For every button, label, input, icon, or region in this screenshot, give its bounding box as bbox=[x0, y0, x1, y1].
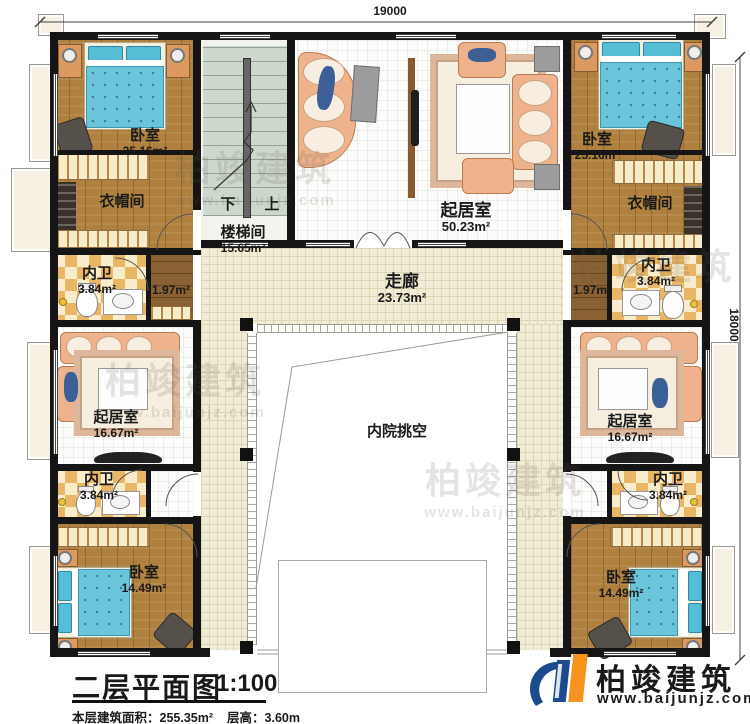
bay-window bbox=[29, 64, 52, 162]
room-name: 卧室 bbox=[123, 128, 168, 145]
room-name: 起居室 bbox=[441, 201, 492, 220]
room-name: 起居室 bbox=[93, 410, 138, 427]
stair-up-label: 上 bbox=[264, 193, 279, 214]
pillow bbox=[58, 603, 72, 633]
hallway-right-strip bbox=[517, 324, 563, 650]
room-label-bedroom-tr: 卧室 25.16m² bbox=[575, 132, 620, 162]
window bbox=[220, 34, 270, 39]
toilet bbox=[662, 291, 684, 319]
room-name: 内卫 bbox=[649, 472, 687, 489]
wall bbox=[287, 32, 295, 248]
logo-url: www.baijunjz.com bbox=[597, 690, 750, 707]
room-label-courtyard: 内院挑空 bbox=[367, 424, 427, 441]
double-door-opening bbox=[354, 240, 412, 248]
room-name: 起居室 bbox=[607, 414, 652, 431]
wall bbox=[50, 517, 193, 524]
wall bbox=[563, 320, 710, 327]
window bbox=[396, 34, 456, 39]
wall bbox=[571, 517, 710, 524]
lamp bbox=[62, 48, 77, 63]
column bbox=[507, 318, 520, 331]
room-label-living-right: 起居室 16.67m² bbox=[607, 414, 652, 444]
courtyard-rail-top bbox=[257, 324, 507, 333]
room-area: 16.67m² bbox=[93, 427, 138, 440]
room-name: 内卫 bbox=[637, 258, 675, 275]
person bbox=[468, 48, 496, 62]
floor-lamp bbox=[58, 498, 66, 506]
window bbox=[705, 556, 710, 626]
threshold bbox=[150, 306, 191, 320]
vestibule-bottom-left bbox=[148, 471, 193, 517]
sofa-cushion bbox=[518, 110, 552, 136]
sofa-cushion bbox=[303, 126, 345, 154]
window bbox=[78, 651, 150, 656]
pillow bbox=[602, 42, 640, 57]
room-area: 50.23m² bbox=[441, 220, 492, 235]
window bbox=[602, 34, 676, 39]
bay-window bbox=[11, 168, 53, 252]
room-label-bath-tl: 内卫 3.84m² bbox=[78, 266, 116, 296]
room-area: 25.16m² bbox=[575, 149, 620, 162]
person bbox=[652, 378, 668, 408]
column bbox=[507, 641, 520, 654]
wall bbox=[50, 248, 201, 255]
wall bbox=[571, 464, 710, 471]
door-opening bbox=[563, 210, 571, 250]
plan-scale: 1:100 bbox=[216, 670, 277, 698]
courtyard-rail-right bbox=[507, 333, 517, 645]
dimension-tick bbox=[735, 52, 745, 62]
window bbox=[53, 556, 58, 626]
tv bbox=[606, 452, 674, 463]
wardrobe-cabinet bbox=[684, 186, 704, 236]
room-label-bedroom-br: 卧室 14.49m² bbox=[599, 570, 644, 600]
wall bbox=[563, 248, 710, 255]
room-label-stairwell: 楼梯间 15.65m² bbox=[220, 225, 265, 255]
bay-window bbox=[711, 342, 739, 458]
side-mat bbox=[350, 65, 380, 123]
stair-down-label: 下 bbox=[220, 193, 235, 214]
room-area: 25.16m² bbox=[123, 145, 168, 158]
armchair-sofa bbox=[462, 158, 514, 194]
room-area: 3.84m² bbox=[649, 489, 687, 502]
floor-area-text: 本层建筑面积：255.35m² bbox=[72, 711, 213, 724]
room-label-living-left: 起居室 16.67m² bbox=[93, 410, 138, 440]
room-area: 15.65m² bbox=[220, 242, 265, 255]
window bbox=[98, 34, 158, 39]
tv bbox=[94, 452, 162, 463]
wall bbox=[146, 471, 151, 517]
floor-height-text: 层高：3.60m bbox=[227, 711, 300, 724]
room-name: 内卫 bbox=[80, 472, 118, 489]
floor-plan: 卧室 25.16m² 衣帽间 内卫 3.84m² 1.97m² 下 上 楼梯间 … bbox=[0, 0, 750, 724]
room-label-hallway: 走廊 23.73m² bbox=[378, 272, 426, 306]
column bbox=[240, 318, 253, 331]
wardrobe bbox=[56, 527, 150, 547]
room-name: 楼梯间 bbox=[220, 225, 265, 242]
column bbox=[240, 448, 253, 461]
lamp bbox=[58, 551, 72, 565]
column bbox=[240, 641, 253, 654]
pillow bbox=[643, 42, 681, 57]
wall bbox=[50, 464, 193, 471]
pillow bbox=[58, 571, 72, 601]
lamp bbox=[686, 551, 700, 565]
room-name: 内院挑空 bbox=[367, 424, 427, 441]
door-opening bbox=[563, 472, 571, 516]
room-area: 3.84m² bbox=[637, 275, 675, 288]
wardrobe bbox=[56, 230, 150, 248]
bay-window bbox=[29, 546, 52, 634]
room-name: 内卫 bbox=[78, 266, 116, 283]
window bbox=[418, 242, 466, 247]
room-area: 14.49m² bbox=[599, 587, 644, 600]
room-name: 卧室 bbox=[122, 565, 167, 582]
door-opening bbox=[193, 210, 201, 250]
dimension-right: 18000 bbox=[727, 303, 741, 347]
dimension-tick bbox=[735, 655, 745, 665]
stair-rail bbox=[243, 58, 251, 218]
column bbox=[507, 448, 520, 461]
sink bbox=[630, 294, 652, 310]
bed-duvet bbox=[600, 62, 682, 128]
window bbox=[705, 74, 710, 156]
window bbox=[53, 74, 58, 156]
window bbox=[705, 350, 710, 454]
logo-tower-orange bbox=[568, 654, 588, 702]
coffee-table bbox=[598, 368, 648, 410]
floor-lamp bbox=[59, 298, 67, 306]
room-area: 3.84m² bbox=[80, 489, 118, 502]
sink bbox=[628, 495, 648, 509]
pillow bbox=[88, 46, 123, 61]
room-name: 衣帽间 bbox=[627, 196, 672, 213]
window bbox=[53, 350, 58, 454]
room-label-cloak-tl: 衣帽间 bbox=[99, 194, 144, 211]
floor-lamp bbox=[690, 498, 698, 506]
window bbox=[306, 242, 350, 247]
wardrobe bbox=[612, 160, 704, 184]
door-opening bbox=[193, 472, 201, 516]
floor-lamp bbox=[690, 300, 698, 308]
logo-building-icon bbox=[528, 652, 592, 712]
room-label-bath-tr: 内卫 3.84m² bbox=[637, 258, 675, 288]
room-area: 3.84m² bbox=[78, 283, 116, 296]
room-area: 1.97m² bbox=[152, 284, 190, 297]
room-name: 衣帽间 bbox=[99, 194, 144, 211]
sofa-cushion bbox=[518, 80, 552, 106]
room-label-bath-bl: 内卫 3.84m² bbox=[80, 472, 118, 502]
hallway-left-strip bbox=[201, 324, 247, 650]
room-area: 14.49m² bbox=[122, 582, 167, 595]
coffee-table bbox=[456, 84, 510, 154]
room-name: 卧室 bbox=[599, 570, 644, 587]
room-label-living-top: 起居室 50.23m² bbox=[441, 201, 492, 235]
room-label-bath-br: 内卫 3.84m² bbox=[649, 472, 687, 502]
lower-floor-outline bbox=[278, 560, 487, 693]
pillow bbox=[688, 571, 702, 601]
pillow bbox=[126, 46, 161, 61]
title-underline bbox=[72, 700, 266, 703]
tv bbox=[411, 90, 419, 146]
bay-window bbox=[712, 546, 735, 634]
wall bbox=[607, 471, 612, 517]
courtyard-rail-left bbox=[247, 333, 257, 645]
room-label-cloak-tr: 衣帽间 bbox=[627, 196, 672, 213]
coffee-table bbox=[98, 368, 148, 410]
plan-info: 本层建筑面积：255.35m²层高：3.60m bbox=[72, 707, 314, 724]
wardrobe bbox=[610, 527, 704, 547]
pillow bbox=[688, 603, 702, 633]
person bbox=[64, 372, 78, 402]
room-name: 卧室 bbox=[575, 132, 620, 149]
room-label-corr-tr: 1.97m² bbox=[573, 284, 611, 297]
sofa-cushion bbox=[518, 140, 552, 164]
lamp bbox=[687, 45, 702, 60]
room-label-bedroom-tl: 卧室 25.16m² bbox=[123, 128, 168, 158]
logo-swoosh bbox=[530, 662, 561, 706]
logo-tower-blue bbox=[553, 660, 570, 702]
side-table bbox=[534, 164, 560, 190]
room-label-corr-tl: 1.97m² bbox=[152, 284, 190, 297]
lamp bbox=[578, 45, 593, 60]
room-area: 1.97m² bbox=[573, 284, 611, 297]
bay-window bbox=[712, 64, 736, 156]
wall bbox=[50, 320, 193, 327]
side-table bbox=[534, 46, 560, 72]
room-name: 走廊 bbox=[378, 272, 426, 291]
lamp bbox=[170, 48, 185, 63]
bed-duvet bbox=[86, 66, 164, 128]
room-label-bedroom-bl: 卧室 14.49m² bbox=[122, 565, 167, 595]
vestibule-bottom-right bbox=[571, 471, 612, 517]
dimension-top: 19000 bbox=[373, 4, 406, 18]
wall bbox=[146, 255, 151, 321]
room-area: 23.73m² bbox=[378, 291, 426, 306]
room-area: 16.67m² bbox=[607, 431, 652, 444]
